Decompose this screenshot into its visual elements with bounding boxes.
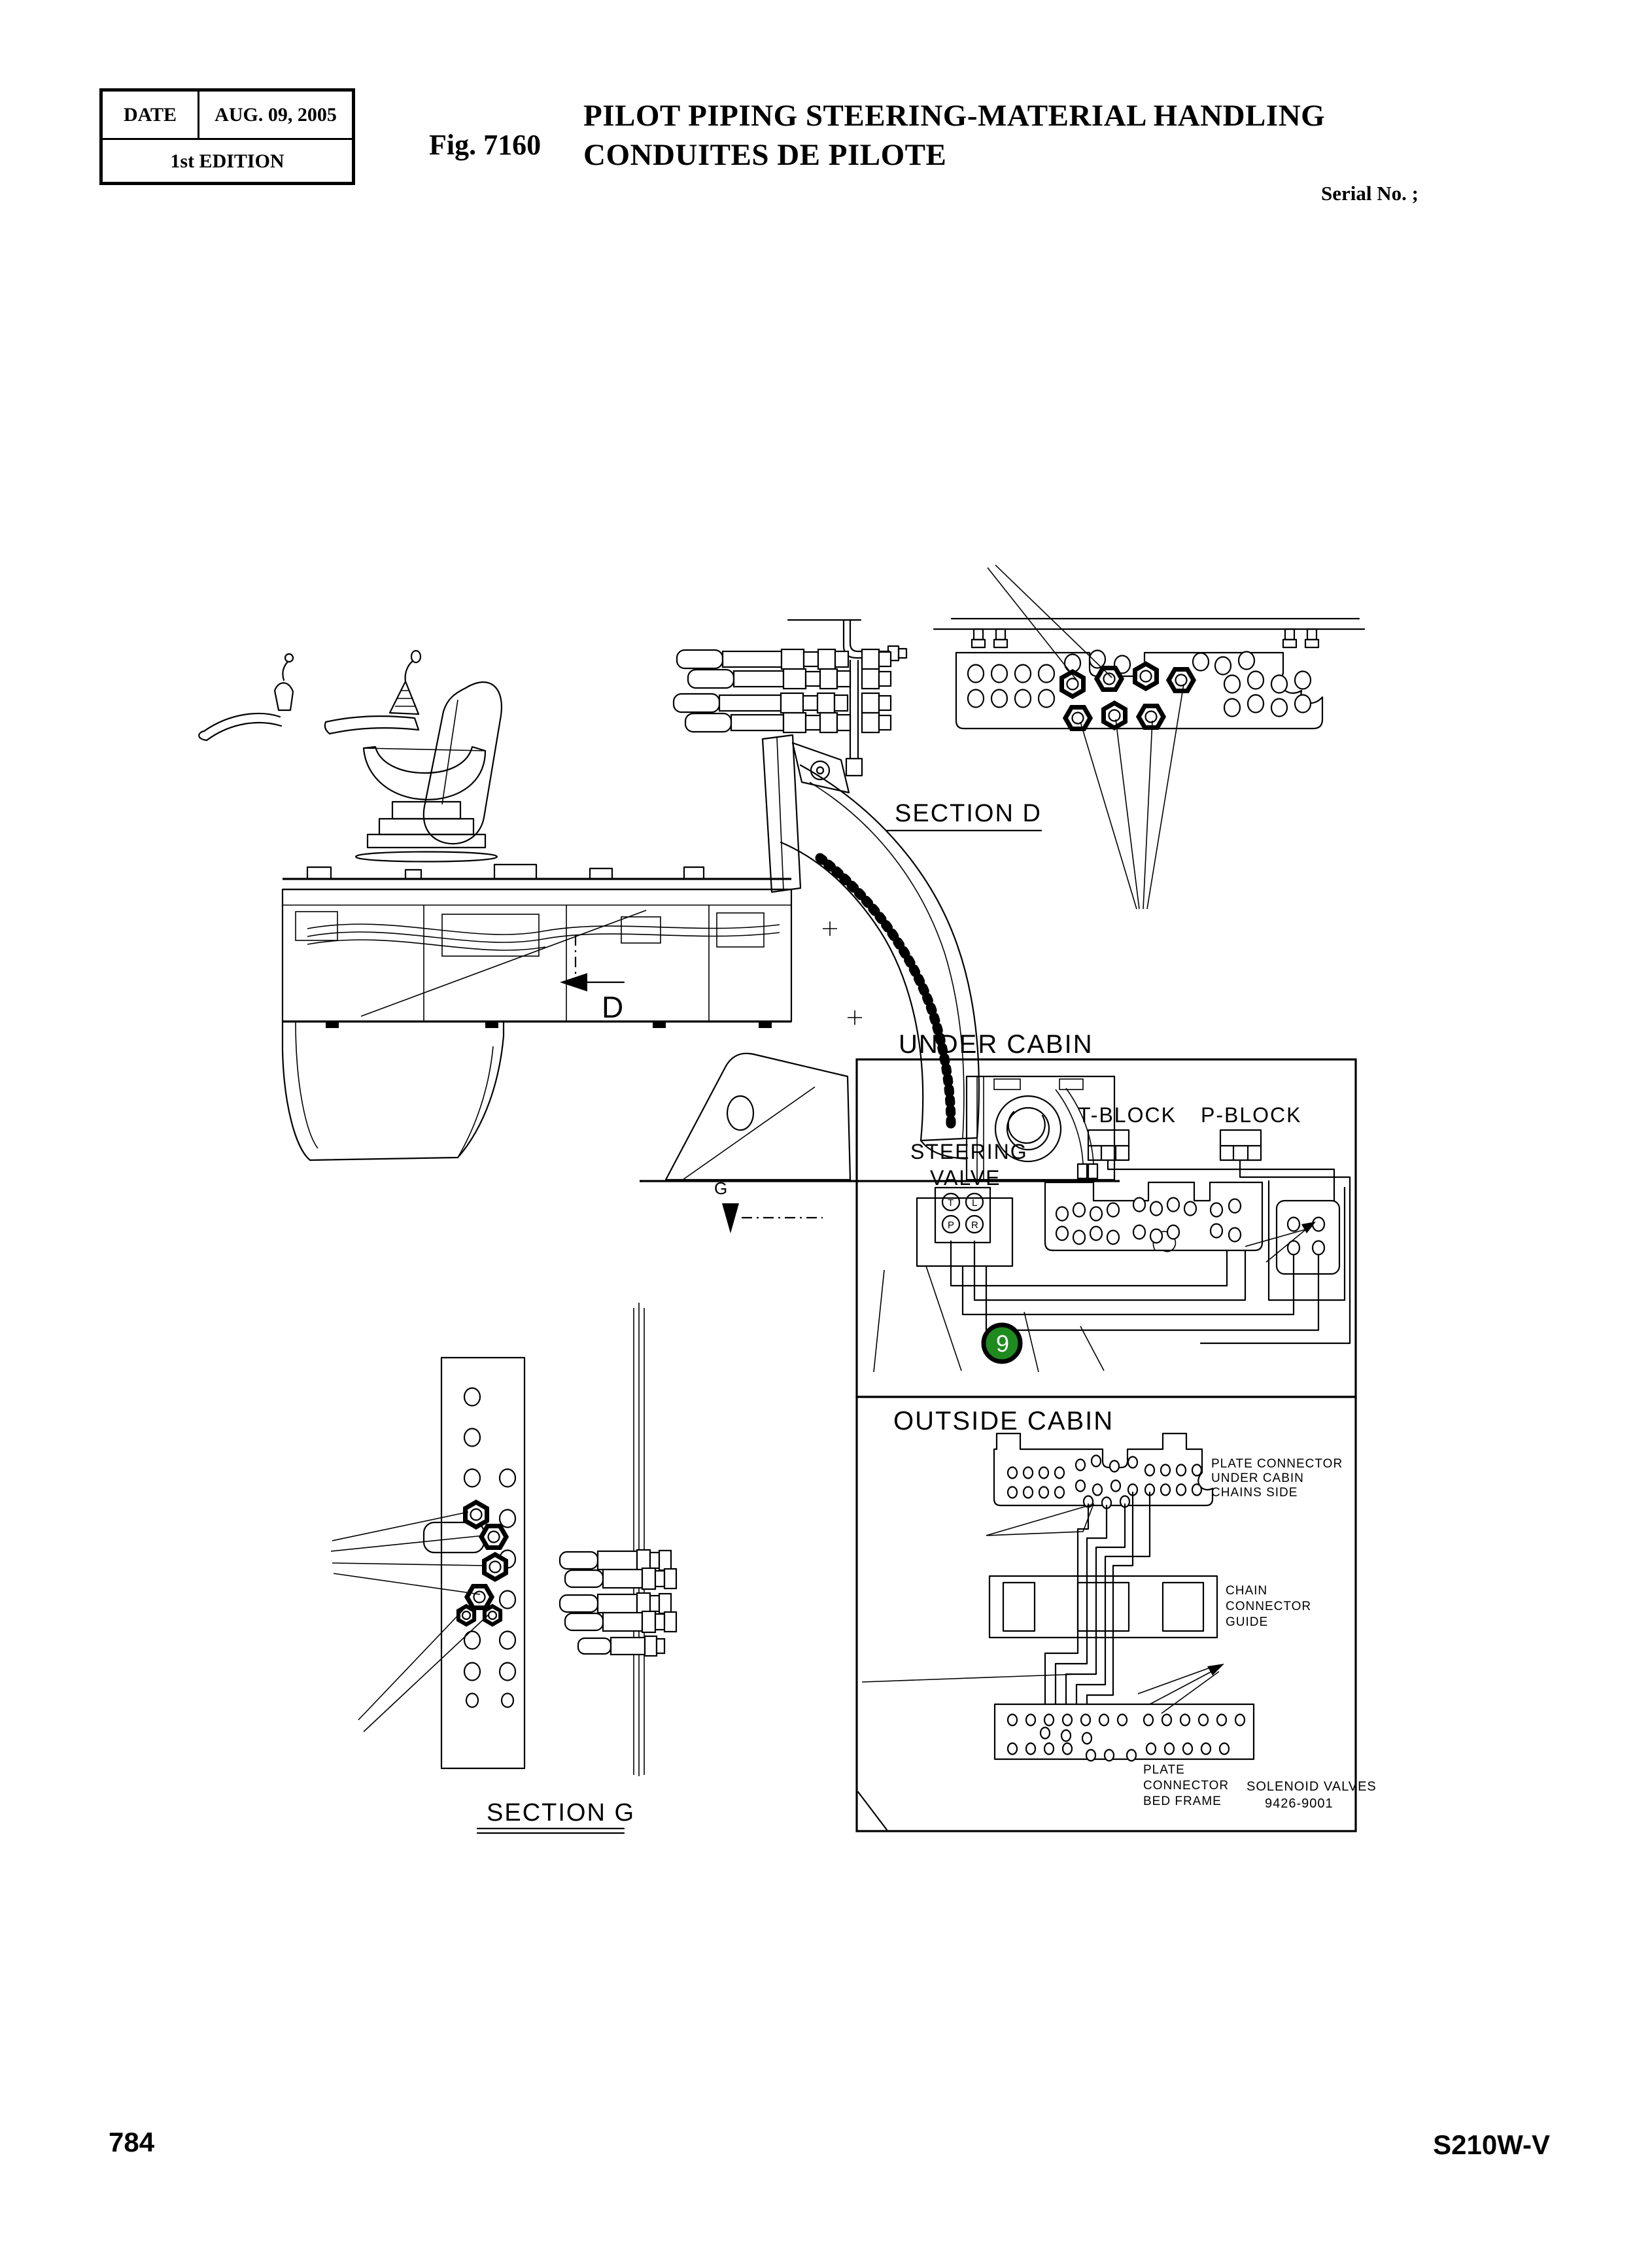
section-d-marker: D	[560, 935, 625, 1024]
catalog-page: DATE AUG. 09, 2005 1st EDITION Fig. 7160…	[0, 0, 1652, 2249]
joystick-boot	[390, 681, 419, 714]
outside-cabin-box: OUTSIDE CABIN PLATE CONNECTOR UNDER CABI…	[857, 1397, 1377, 1831]
hose-fittings-section-d	[674, 649, 891, 776]
sub-plate	[1277, 1201, 1339, 1274]
svg-text:CONNECTOR: CONNECTOR	[1226, 1600, 1311, 1613]
svg-text:CONNECTOR: CONNECTOR	[1143, 1779, 1229, 1793]
plate-connector-bed-frame	[995, 1704, 1254, 1761]
svg-text:PLATE CONNECTOR: PLATE CONNECTOR	[1211, 1457, 1343, 1471]
port-p: P	[948, 1220, 955, 1231]
t-block-label: T-BLOCK	[1078, 1103, 1177, 1127]
g-marker-label: G	[714, 1178, 729, 1198]
seat-backrest	[424, 682, 502, 844]
p-block	[1220, 1130, 1261, 1160]
under-cabin-title: UNDER CABIN	[899, 1030, 1093, 1059]
p-block-label: P-BLOCK	[1201, 1103, 1301, 1127]
balloon-number: 9	[996, 1330, 1009, 1357]
port-l: L	[972, 1197, 978, 1209]
section-g-marker: G	[714, 1178, 823, 1233]
page-number: 784	[109, 2127, 154, 2158]
d-marker-label: D	[602, 990, 625, 1024]
svg-text:PLATE: PLATE	[1143, 1763, 1185, 1777]
section-g-label: SECTION G	[487, 1799, 635, 1827]
svg-text:BED FRAME: BED FRAME	[1143, 1794, 1222, 1808]
steering-valve-label-2: VALVE	[930, 1166, 1001, 1190]
hose-chain	[820, 858, 951, 1125]
svg-text:CHAINS SIDE: CHAINS SIDE	[1211, 1486, 1298, 1500]
steering-valve-label-1: STEERING	[910, 1140, 1028, 1163]
model-code: S210W-V	[1433, 2129, 1550, 2161]
section-d-label: SECTION D	[895, 800, 1042, 827]
svg-text:9426-9001: 9426-9001	[1265, 1796, 1334, 1811]
bed-frame-label: PLATE CONNECTOR BED FRAME	[1143, 1763, 1229, 1808]
svg-text:CHAIN: CHAIN	[1226, 1584, 1267, 1598]
gusset-plate	[666, 1054, 850, 1180]
section-g-fittings	[560, 1550, 676, 1656]
chain-guide-label: CHAIN CONNECTOR GUIDE	[1226, 1584, 1311, 1629]
section-g-view: SECTION G	[331, 1303, 676, 1833]
port-r: R	[971, 1220, 979, 1231]
part-balloon-9: 9	[984, 1325, 1020, 1362]
svg-text:SOLENOID VALVES: SOLENOID VALVES	[1247, 1779, 1377, 1794]
port-t: T	[948, 1197, 954, 1209]
mounting-bolts	[972, 629, 1318, 647]
solenoid-valves-label: SOLENOID VALVES 9426-9001	[1247, 1779, 1377, 1811]
steering-valve-block: T L P R	[917, 1188, 1012, 1266]
chain-connector-guide	[989, 1576, 1217, 1638]
under-cabin-plate-holes	[1056, 1198, 1241, 1245]
plate-hex-nuts	[1062, 662, 1197, 734]
technical-drawing: D G	[0, 0, 1652, 2249]
seat-armrest	[325, 716, 419, 734]
t-block	[1088, 1130, 1129, 1160]
outside-cabin-title: OUTSIDE CABIN	[893, 1407, 1114, 1435]
svg-text:UNDER CABIN: UNDER CABIN	[1211, 1471, 1304, 1485]
plate-connector-holes	[1008, 1456, 1201, 1509]
under-cabin-box: UNDER CABIN T-BLOCK P-BLOCK STEERING VAL…	[857, 1030, 1356, 1397]
seat-cushion	[364, 747, 485, 800]
svg-text:GUIDE: GUIDE	[1226, 1615, 1268, 1629]
chain-wires	[1045, 1492, 1150, 1704]
plate-connector-label: PLATE CONNECTOR UNDER CABIN CHAINS SIDE	[1211, 1457, 1343, 1500]
